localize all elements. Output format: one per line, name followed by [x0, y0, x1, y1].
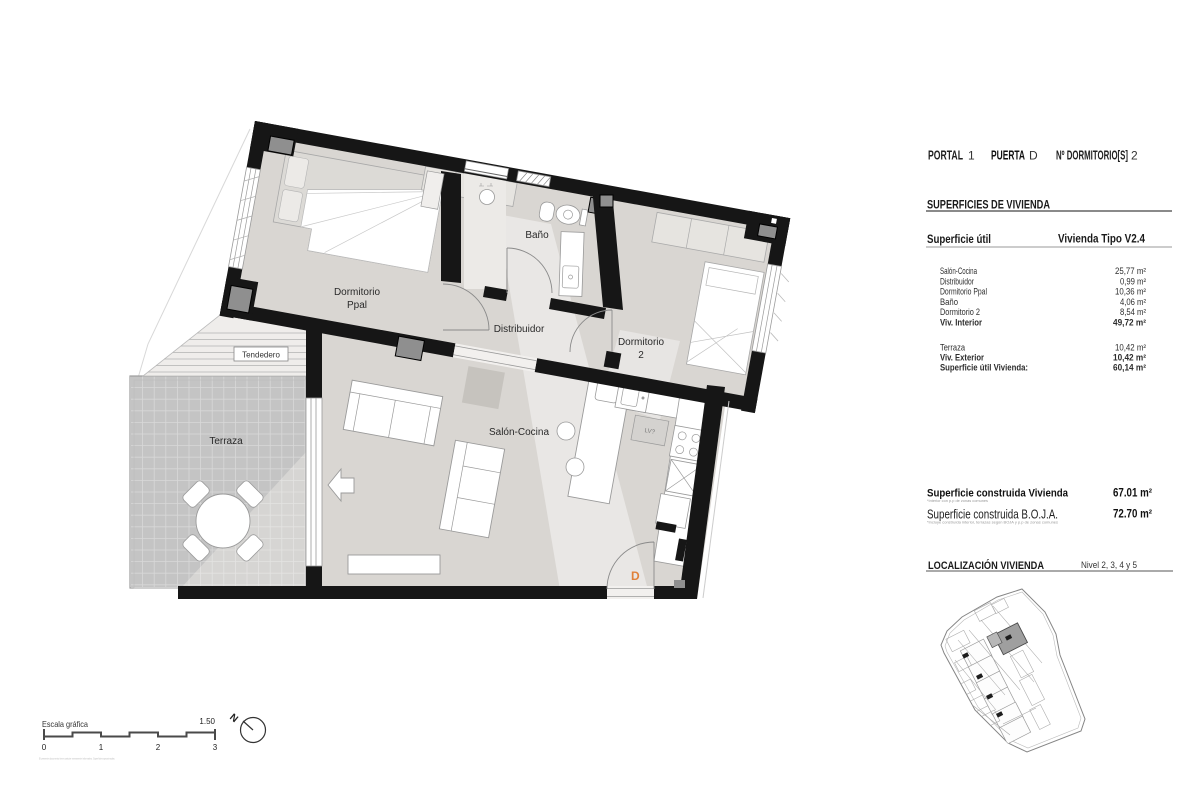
svg-text:Distribuidor: Distribuidor	[940, 276, 974, 286]
svg-text:Viv. Interior: Viv. Interior	[940, 318, 982, 328]
svg-text:SUPERFICIES DE VIVIENDA: SUPERFICIES DE VIVIENDA	[927, 200, 1050, 212]
svg-text:Superficie útil Vivienda:: Superficie útil Vivienda:	[940, 363, 1028, 373]
svg-text:8,54 m²: 8,54 m²	[1120, 307, 1146, 317]
svg-text:Superficie construida Vivienda: Superficie construida Vivienda	[927, 488, 1069, 500]
svg-text:25,77 m²: 25,77 m²	[1115, 266, 1146, 276]
svg-text:4,06 m²: 4,06 m²	[1120, 297, 1146, 307]
svg-text:Salón-Cocina: Salón-Cocina	[489, 427, 549, 438]
svg-text:Salón-Cocina: Salón-Cocina	[940, 266, 977, 276]
svg-text:*Interior con p.p de zonas com: *Interior con p.p de zonas comunes	[927, 499, 988, 503]
svg-text:10,42 m²: 10,42 m²	[1115, 342, 1146, 352]
svg-text:PUERTA: PUERTA	[991, 149, 1025, 163]
svg-text:Terraza: Terraza	[940, 342, 965, 352]
svg-text:Dormitorio: Dormitorio	[618, 337, 665, 348]
svg-text:72.70 m²: 72.70 m²	[1113, 509, 1152, 521]
svg-text:D: D	[631, 569, 640, 583]
svg-text:60,14 m²: 60,14 m²	[1113, 363, 1146, 373]
svg-text:Baño: Baño	[525, 230, 549, 241]
svg-text:49,72 m²: 49,72 m²	[1113, 318, 1146, 328]
svg-text:Vivienda Tipo V2.4: Vivienda Tipo V2.4	[1058, 232, 1145, 246]
svg-text:2: 2	[638, 350, 644, 361]
svg-text:El presente documento tiene ca: El presente documento tiene carácter mer…	[39, 757, 115, 761]
svg-text:Baño: Baño	[940, 297, 958, 307]
svg-text:Nº DORMITORIO[S]: Nº DORMITORIO[S]	[1056, 149, 1128, 163]
svg-text:1: 1	[99, 743, 104, 752]
svg-text:1: 1	[968, 149, 975, 163]
svg-text:D: D	[1029, 149, 1038, 163]
svg-text:10,42 m²: 10,42 m²	[1113, 353, 1146, 363]
svg-text:Distribuidor: Distribuidor	[494, 324, 545, 335]
svg-text:Dormitorio 2: Dormitorio 2	[940, 307, 980, 317]
svg-text:Ppal: Ppal	[347, 300, 367, 311]
svg-text:Terraza: Terraza	[209, 436, 243, 447]
svg-text:LOCALIZACIÓN VIVIENDA: LOCALIZACIÓN VIVIENDA	[928, 559, 1044, 572]
svg-text:PORTAL: PORTAL	[928, 149, 963, 163]
svg-text:Nivel 2, 3, 4 y 5: Nivel 2, 3, 4 y 5	[1081, 560, 1137, 570]
svg-text:Dormitorio: Dormitorio	[334, 287, 381, 298]
svg-text:Dormitorio Ppal: Dormitorio Ppal	[940, 287, 987, 297]
svg-text:10,36 m²: 10,36 m²	[1115, 287, 1146, 297]
svg-text:*Incluye construída interior,: *Incluye construída interior, terrazas s…	[927, 521, 1058, 525]
svg-text:Escala gráfica: Escala gráfica	[42, 719, 88, 729]
svg-text:Superficie construida B.O.J.A.: Superficie construida B.O.J.A.	[927, 508, 1058, 522]
svg-text:67.01 m²: 67.01 m²	[1113, 488, 1152, 500]
svg-text:0,99 m²: 0,99 m²	[1120, 276, 1146, 286]
svg-text:1.50: 1.50	[199, 717, 215, 726]
svg-text:3: 3	[213, 743, 218, 752]
svg-text:0: 0	[42, 743, 47, 752]
svg-text:2: 2	[156, 743, 161, 752]
svg-text:Tendedero: Tendedero	[242, 351, 280, 360]
svg-text:2: 2	[1131, 149, 1138, 163]
svg-text:Superficie útil: Superficie útil	[927, 232, 991, 246]
svg-text:Viv. Exterior: Viv. Exterior	[940, 353, 984, 363]
